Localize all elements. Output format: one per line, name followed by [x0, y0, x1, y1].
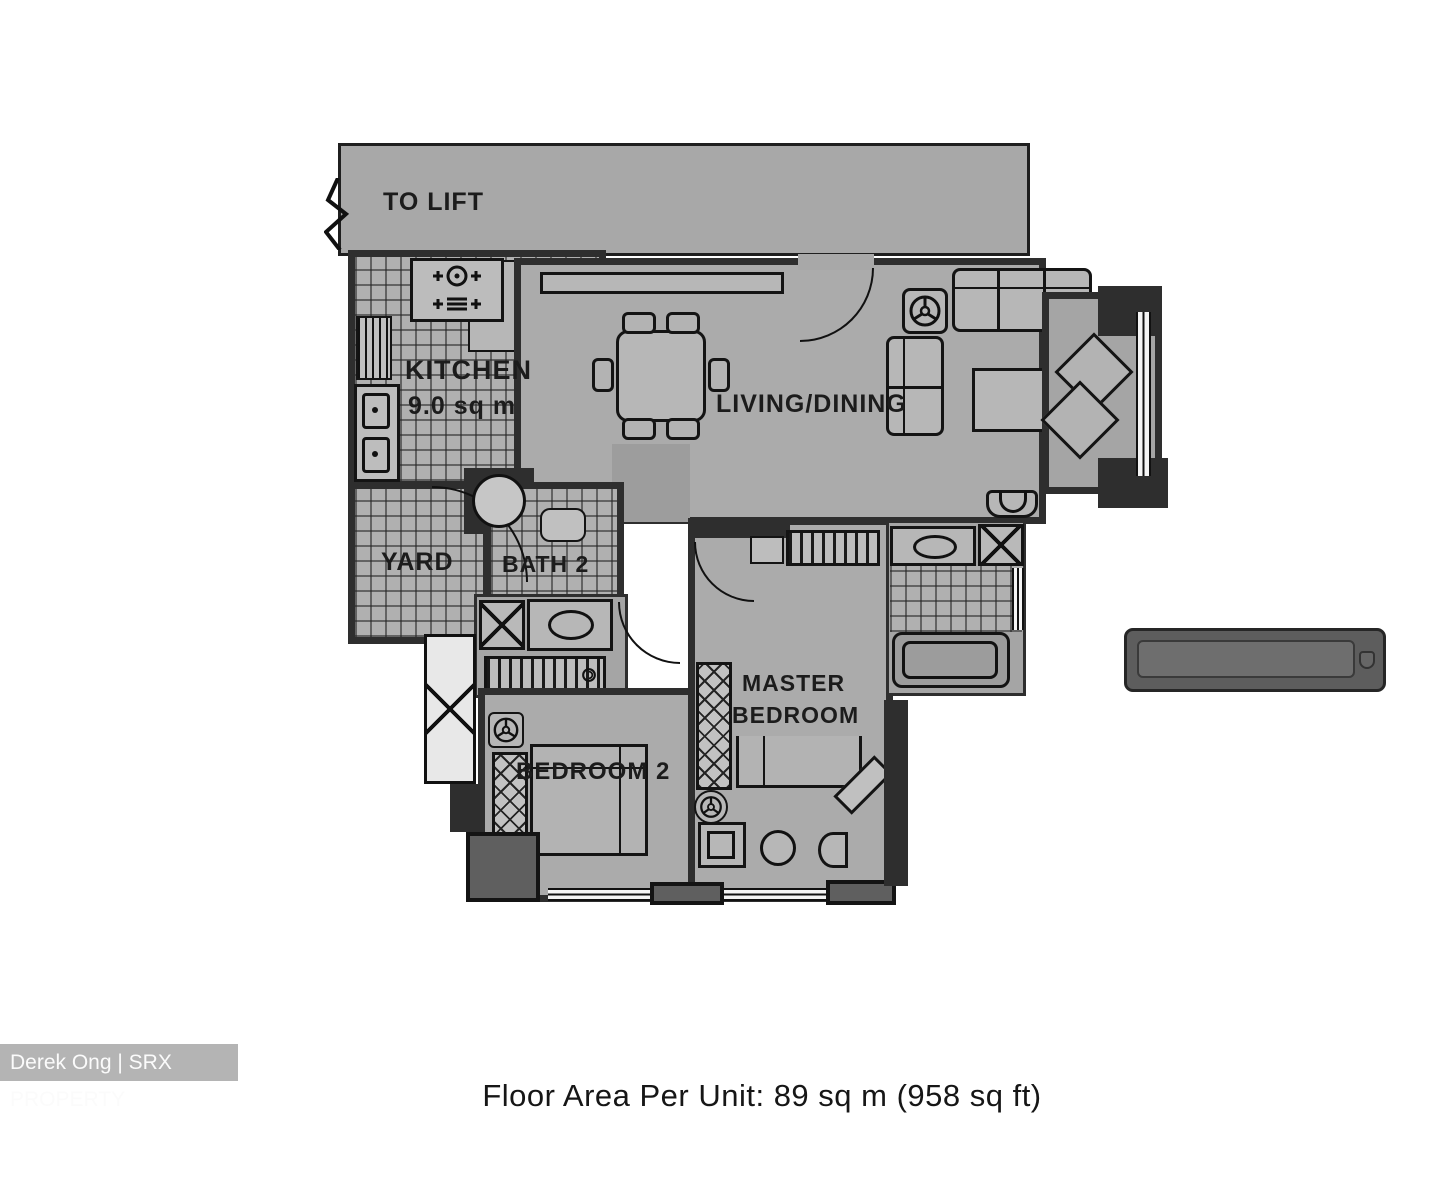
watermark: Derek Ong | SRX PROPERTY: [0, 1044, 238, 1081]
kitchen-label: KITCHEN: [405, 355, 532, 386]
balcony-window: [1136, 312, 1151, 476]
dining-chair: [666, 418, 700, 440]
wardrobe: [696, 662, 732, 790]
dining-chair: [622, 418, 656, 440]
chair: [818, 832, 848, 868]
sideboard: [540, 272, 784, 294]
dining-chair: [708, 358, 730, 392]
stool: [760, 830, 796, 866]
master-bath-window: [1012, 568, 1024, 630]
yard-label: YARD: [381, 548, 454, 577]
shaft-x: [978, 524, 1024, 566]
desk: [698, 822, 746, 868]
corridor-label: TO LIFT: [383, 188, 484, 217]
shaft-x: [479, 600, 525, 650]
corridor-break-icon: [324, 178, 352, 250]
master-bath-floor: [890, 566, 1022, 632]
washing-machine-icon: [472, 474, 526, 528]
floorplan-page: TO LIFT KITCHEN 9.0 sq m LIVING/DINING: [0, 0, 1440, 1180]
dining-chair: [622, 312, 656, 334]
exterior-wall: [884, 700, 908, 886]
master-bedroom-label-line1: MASTER: [742, 670, 845, 697]
ceiling-fan-icon: [488, 712, 524, 748]
master-window: [722, 888, 828, 901]
shoe-cabinet: [750, 536, 784, 564]
kitchen-sink: [354, 384, 400, 482]
toilet: [527, 599, 613, 651]
ceiling-fan-icon: [902, 288, 948, 334]
stove-icon: [410, 258, 504, 322]
dish-rack: [356, 316, 392, 380]
living-dining-label: LIVING/DINING: [716, 390, 907, 419]
master-bedroom-label-line2: BEDROOM: [732, 702, 859, 729]
dining-chair: [666, 312, 700, 334]
kitchen-area-label: 9.0 sq m: [408, 392, 516, 421]
sofa-2-seat: [886, 336, 944, 436]
floor-area-caption: Floor Area Per Unit: 89 sq m (958 sq ft): [0, 1078, 1440, 1114]
exterior-wall: [1098, 286, 1162, 336]
bath2-shower: [540, 508, 586, 542]
ceiling-fan-icon: [694, 790, 728, 824]
exterior-wall: [1098, 458, 1168, 508]
dining-chair: [592, 358, 614, 392]
bath2-label: BATH 2: [502, 551, 589, 578]
bathtub: [892, 632, 1010, 688]
vanity-sink: [890, 526, 976, 566]
aircon-ledge: [424, 634, 476, 784]
tv-console: [986, 490, 1038, 518]
wardrobe: [786, 530, 880, 566]
exterior-wall: [450, 784, 480, 832]
corridor: TO LIFT: [338, 143, 1030, 256]
detached-bathtub: [1124, 628, 1386, 692]
bed: [736, 736, 862, 788]
bedroom2-label: BEDROOM 2: [516, 758, 670, 786]
exterior-wall: [466, 832, 540, 902]
dining-table: [616, 330, 706, 422]
exterior-wall: [650, 882, 724, 905]
